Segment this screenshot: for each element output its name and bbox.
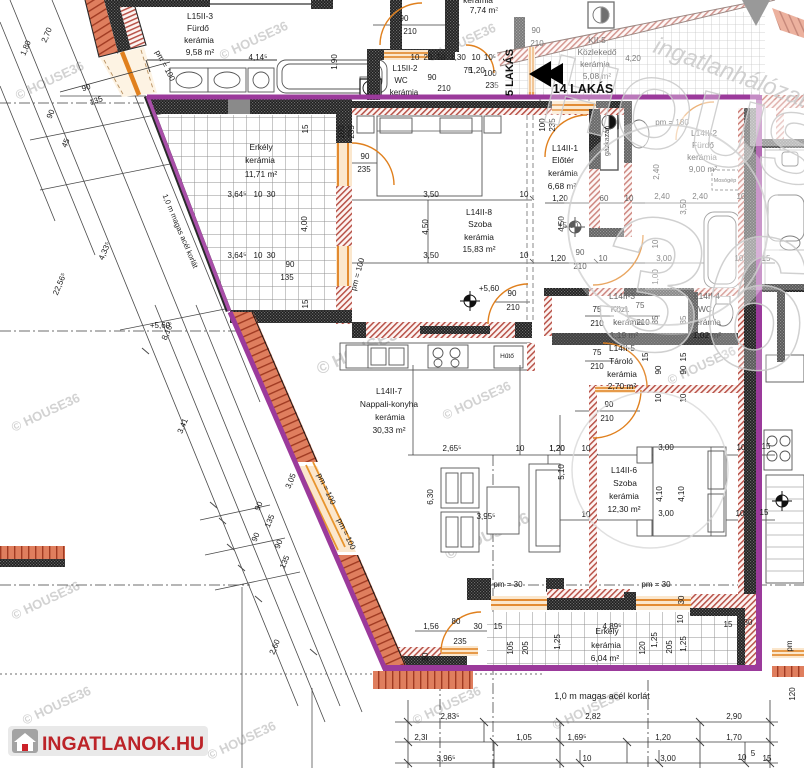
- svg-text:90: 90: [508, 289, 517, 298]
- svg-text:80: 80: [452, 617, 461, 626]
- svg-text:75: 75: [464, 66, 473, 75]
- svg-text:WC: WC: [394, 76, 408, 85]
- svg-text:L14II-8: L14II-8: [466, 207, 492, 217]
- svg-text:pm: pm: [785, 640, 794, 651]
- svg-text:90: 90: [361, 152, 370, 161]
- svg-text:3,00: 3,00: [660, 754, 676, 763]
- svg-text:10: 10: [411, 53, 420, 62]
- svg-text:1,20: 1,20: [550, 254, 566, 263]
- svg-text:30: 30: [267, 251, 276, 260]
- svg-text:1,20: 1,20: [655, 733, 671, 742]
- svg-text:210: 210: [437, 84, 451, 93]
- svg-text:kerámia: kerámia: [463, 0, 493, 5]
- svg-text:Szoba: Szoba: [468, 219, 492, 229]
- svg-text:10: 10: [520, 190, 529, 199]
- svg-text:7,74 m²: 7,74 m²: [470, 5, 499, 15]
- svg-text:Előtér: Előtér: [552, 155, 574, 165]
- svg-text:10: 10: [582, 444, 591, 453]
- svg-text:1,20: 1,20: [549, 444, 565, 453]
- svg-text:10: 10: [654, 393, 663, 402]
- svg-text:15: 15: [494, 622, 503, 631]
- svg-text:30,33 m²: 30,33 m²: [372, 425, 405, 435]
- svg-text:pm = 30: pm = 30: [493, 580, 523, 589]
- svg-text:INGATLANOK.HU: INGATLANOK.HU: [42, 733, 204, 755]
- svg-text:4,89⁵: 4,89⁵: [603, 622, 622, 631]
- svg-text:kerámia: kerámia: [390, 88, 419, 97]
- svg-text:Nappali-konyha: Nappali-konyha: [360, 399, 419, 409]
- svg-text:90: 90: [286, 260, 295, 269]
- svg-text:205: 205: [665, 640, 674, 654]
- svg-text:2,3I: 2,3I: [414, 733, 427, 742]
- svg-text:1,25: 1,25: [553, 634, 562, 650]
- svg-text:9,58 m²: 9,58 m²: [186, 47, 215, 57]
- svg-text:15: 15: [762, 442, 771, 451]
- svg-text:15: 15: [301, 124, 310, 133]
- svg-text:+5,60: +5,60: [479, 284, 500, 293]
- svg-text:10: 10: [437, 53, 446, 62]
- svg-text:1,25: 1,25: [679, 636, 688, 652]
- svg-text:10: 10: [520, 251, 529, 260]
- svg-text:15: 15: [301, 299, 310, 308]
- svg-text:210: 210: [506, 303, 520, 312]
- svg-text:5: 5: [751, 749, 756, 758]
- svg-text:10: 10: [676, 614, 685, 623]
- svg-text:10: 10: [254, 190, 263, 199]
- svg-text:4,14⁵: 4,14⁵: [249, 53, 268, 62]
- svg-text:1,90: 1,90: [330, 54, 339, 70]
- svg-text:3,00: 3,00: [658, 443, 674, 452]
- svg-text:Fürdő: Fürdő: [187, 23, 209, 33]
- svg-text:1,70: 1,70: [726, 733, 742, 742]
- svg-text:kerámia: kerámia: [609, 491, 639, 501]
- svg-text:205: 205: [521, 641, 530, 655]
- svg-text:235: 235: [357, 165, 371, 174]
- svg-text:2,65⁵: 2,65⁵: [443, 444, 462, 453]
- svg-text:L15II-2: L15II-2: [393, 64, 418, 73]
- svg-text:L14II-6: L14II-6: [611, 465, 637, 475]
- svg-text:30: 30: [677, 595, 686, 604]
- svg-text:6,30: 6,30: [426, 489, 435, 505]
- svg-text:10: 10: [472, 53, 481, 62]
- svg-text:3,64⁵: 3,64⁵: [228, 190, 247, 199]
- svg-text:1,30: 1,30: [450, 53, 466, 62]
- svg-text:Hűtő: Hűtő: [500, 353, 514, 360]
- svg-text:3,96⁵: 3,96⁵: [437, 754, 456, 763]
- svg-text:3,64⁵: 3,64⁵: [228, 251, 247, 260]
- svg-text:36: 36: [583, 172, 804, 417]
- svg-text:kerámia: kerámia: [245, 155, 275, 165]
- svg-text:2,90: 2,90: [726, 712, 742, 721]
- svg-text:15: 15: [760, 508, 769, 517]
- svg-text:120: 120: [638, 641, 647, 655]
- svg-text:1,56: 1,56: [423, 622, 439, 631]
- svg-text:kerámia: kerámia: [375, 412, 405, 422]
- svg-text:210: 210: [600, 414, 614, 423]
- svg-text:4,50: 4,50: [421, 219, 430, 235]
- svg-text:10: 10: [254, 251, 263, 260]
- svg-text:1,25: 1,25: [650, 632, 659, 648]
- svg-text:kerámia: kerámia: [184, 35, 214, 45]
- svg-text:10⁵: 10⁵: [484, 53, 496, 62]
- svg-text:kerámia: kerámia: [464, 232, 494, 242]
- svg-text:30: 30: [421, 652, 430, 661]
- svg-text:10: 10: [737, 443, 746, 452]
- svg-text:2,83⁵: 2,83⁵: [441, 712, 460, 721]
- svg-text:90: 90: [428, 73, 437, 82]
- svg-text:30: 30: [267, 190, 276, 199]
- svg-text:90: 90: [400, 14, 409, 23]
- svg-text:L14II-7: L14II-7: [376, 386, 402, 396]
- svg-text:135: 135: [280, 273, 294, 282]
- svg-text:10: 10: [583, 754, 592, 763]
- svg-text:10: 10: [738, 753, 747, 762]
- svg-text:12,30 m²: 12,30 m²: [607, 504, 640, 514]
- svg-text:5 LAKÁS: 5 LAKÁS: [503, 49, 516, 96]
- svg-text:3,95⁵: 3,95⁵: [477, 512, 496, 521]
- svg-text:10: 10: [516, 444, 525, 453]
- svg-text:210: 210: [403, 27, 417, 36]
- svg-text:4,00: 4,00: [300, 216, 309, 232]
- svg-text:15,83 m²: 15,83 m²: [462, 244, 495, 254]
- svg-text:235: 235: [347, 125, 356, 139]
- svg-text:3,50: 3,50: [423, 190, 439, 199]
- svg-text:10: 10: [736, 509, 745, 518]
- svg-text:11,71 m²: 11,71 m²: [245, 169, 278, 179]
- svg-text:5,10: 5,10: [557, 464, 566, 480]
- svg-text:105: 105: [506, 641, 515, 655]
- svg-text:3,00: 3,00: [658, 509, 674, 518]
- svg-text:30: 30: [474, 622, 483, 631]
- svg-text:L15II-3: L15II-3: [187, 11, 213, 21]
- svg-text:1,69⁵: 1,69⁵: [568, 733, 587, 742]
- svg-text:1,0 m magas acél korlát: 1,0 m magas acél korlát: [554, 691, 650, 701]
- svg-text:3,50: 3,50: [423, 251, 439, 260]
- svg-text:30: 30: [744, 618, 753, 627]
- svg-text:235: 235: [453, 637, 467, 646]
- svg-text:100: 100: [337, 125, 346, 139]
- svg-text:pm = 30: pm = 30: [641, 580, 671, 589]
- svg-text:120: 120: [788, 687, 797, 701]
- svg-text:Erkély: Erkély: [249, 142, 273, 152]
- svg-text:4,10: 4,10: [655, 486, 664, 502]
- svg-text:1,05: 1,05: [516, 733, 532, 742]
- svg-text:Szoba: Szoba: [613, 478, 637, 488]
- svg-text:kerámia: kerámia: [591, 640, 621, 650]
- svg-text:20: 20: [424, 53, 433, 62]
- svg-text:15: 15: [724, 620, 733, 629]
- svg-text:4,10: 4,10: [677, 486, 686, 502]
- svg-text:15: 15: [763, 754, 772, 763]
- svg-text:6,04 m²: 6,04 m²: [591, 653, 620, 663]
- svg-text:2,82: 2,82: [585, 712, 601, 721]
